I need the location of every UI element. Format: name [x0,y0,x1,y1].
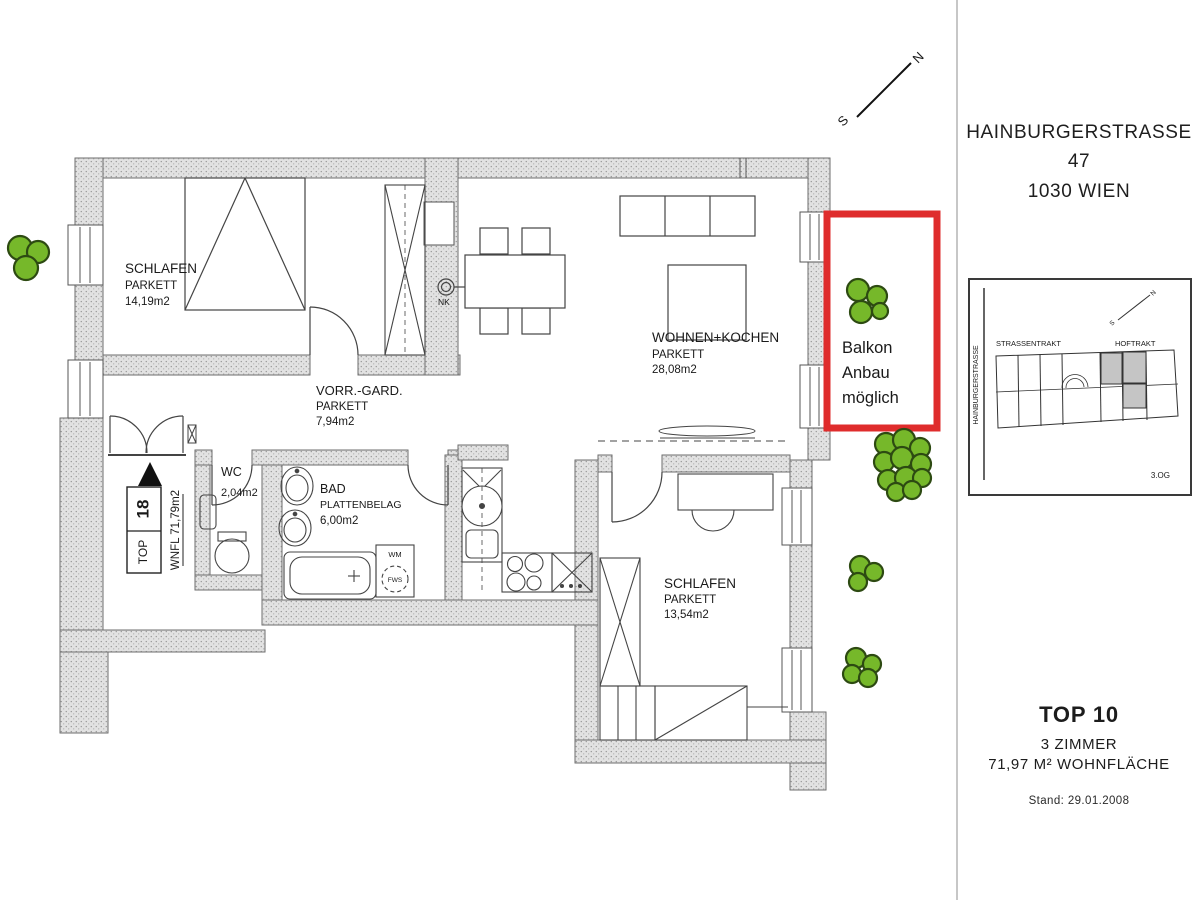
svg-text:PARKETT: PARKETT [664,594,716,606]
svg-text:BAD: BAD [320,482,346,496]
unit-area: 71,97 M² WOHNFLÄCHE [958,756,1200,773]
room-label-bad: BAD PLATTENBELAG 6,00m2 [320,482,402,527]
address-block: HAINBURGERSTRASSE 47 1030 WIEN [958,118,1200,206]
tree-balkon [847,279,888,323]
inset-north-arrow: N S [1108,289,1157,327]
wnfl-label: WNFL 71,79m2 [170,490,182,570]
wardrobe-schlafen1 [385,185,425,355]
site-plan-inset: HAINBURGERSTRASSE N S STRASSENTRAKT HOFT… [968,278,1192,496]
svg-text:S: S [1108,319,1116,327]
unit-info-block: TOP 10 3 ZIMMER 71,97 M² WOHNFLÄCHE Stan… [958,702,1200,807]
tree-large [874,429,931,501]
top-label: TOP [136,540,150,564]
wm-label: WM [388,550,401,559]
svg-text:7,94m2: 7,94m2 [316,416,354,428]
tree-small-2 [843,648,881,687]
sofa-table [668,265,746,340]
svg-text:VORR.-GARD.: VORR.-GARD. [316,383,403,398]
dining-set [465,228,565,334]
sideboard [598,426,790,441]
svg-text:WC: WC [221,465,242,479]
inset-floor-label: 3.OG [1151,471,1170,480]
address-line1: HAINBURGERSTRASSE 47 [958,118,1200,177]
entry-arrow [138,462,162,486]
inset-building [996,350,1178,428]
unit-marker: 18 TOP WNFL 71,79m2 [127,487,183,573]
north-arrow: N S [835,49,927,129]
room-label-schlafen1: SCHLAFEN PARKETT 14,19m2 [125,261,197,308]
living-cabinet [620,196,755,236]
svg-text:PARKETT: PARKETT [652,349,704,361]
svg-text:PARKETT: PARKETT [125,280,177,292]
site-plan-svg: HAINBURGERSTRASSE N S STRASSENTRAKT HOFT… [970,280,1186,490]
balkon-annotation: Balkon Anbau möglich [827,214,937,428]
unit-rooms: 3 ZIMMER [958,736,1200,753]
svg-text:N: N [1149,289,1157,297]
unit-title: TOP 10 [958,702,1200,728]
fws-label: FWS [388,577,403,584]
balkon-line2: Anbau [842,364,890,382]
address-line2: 1030 WIEN [958,177,1200,206]
room-label-schlafen2: SCHLAFEN PARKETT 13,54m2 [664,576,736,621]
svg-text:PLATTENBELAG: PLATTENBELAG [320,499,402,511]
svg-text:2,04m2: 2,04m2 [221,487,258,499]
floor-plan: 18 TOP WNFL 71,79m2 SCHLAFEN PARKETT 14,… [0,0,956,900]
balkon-line3: möglich [842,389,899,407]
svg-text:13,54m2: 13,54m2 [664,609,709,621]
door-symbol [188,425,196,443]
tree-top-left [8,236,49,280]
info-panel: HAINBURGERSTRASSE 47 1030 WIEN HAINBURGE… [958,0,1200,900]
south-label: S [835,112,852,129]
top-number: 18 [133,500,152,519]
svg-text:28,08m2: 28,08m2 [652,364,697,376]
page: 18 TOP WNFL 71,79m2 SCHLAFEN PARKETT 14,… [0,0,1200,900]
balkon-line1: Balkon [842,339,892,357]
kitchen-fixtures [462,468,592,592]
wall-niche [424,202,454,245]
inset-strassentrakt-label: STRASSENTRAKT [996,339,1061,348]
room-label-wohnen: WOHNEN+KOCHEN PARKETT 28,08m2 [652,330,779,376]
svg-text:SCHLAFEN: SCHLAFEN [664,576,736,591]
inset-hoftrakt-label: HOFTRAKT [1115,339,1156,348]
svg-text:PARKETT: PARKETT [316,401,368,413]
svg-text:SCHLAFEN: SCHLAFEN [125,261,197,276]
north-label: N [910,49,927,66]
nk-label: NK [438,297,450,307]
svg-text:WOHNEN+KOCHEN: WOHNEN+KOCHEN [652,330,779,345]
inset-street-label: HAINBURGERSTRASSE [973,345,980,425]
schlafen2-furniture [600,474,788,740]
tree-small-1 [849,556,883,591]
svg-text:14,19m2: 14,19m2 [125,296,170,308]
bed-schlafen1 [185,178,305,310]
unit-stand-date: Stand: 29.01.2008 [958,795,1200,807]
room-label-vorraum: VORR.-GARD. PARKETT 7,94m2 [316,383,403,428]
svg-text:6,00m2: 6,00m2 [320,515,358,527]
